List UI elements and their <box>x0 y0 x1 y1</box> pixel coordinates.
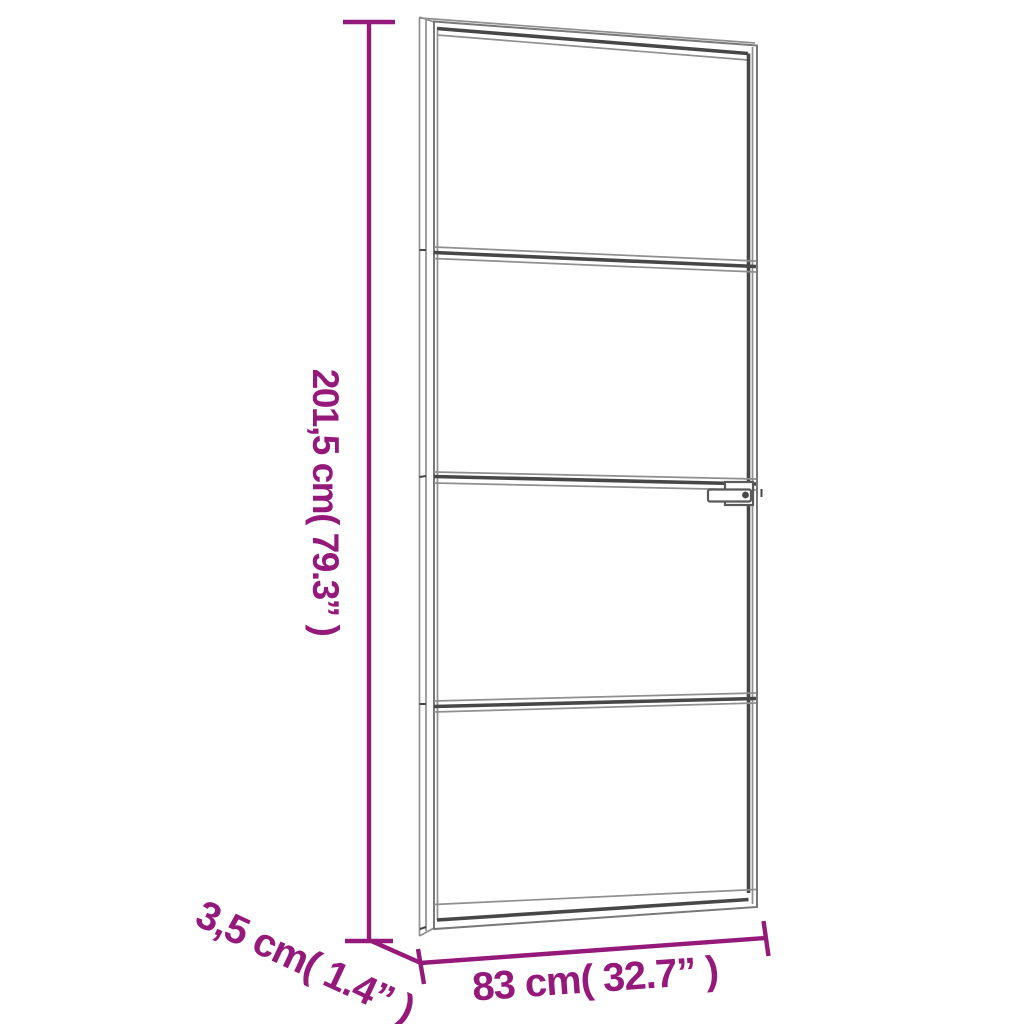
width-dimension: 83 cm( 32.7” ) <box>418 921 769 1010</box>
door-dimension-diagram: 201,5 cm( 79.3” ) 3,5 cm( 1.4” ) 83 cm( … <box>0 0 1024 1024</box>
handle-screw <box>742 492 749 499</box>
door-drawing <box>420 17 762 936</box>
door-left-edge <box>420 17 435 936</box>
height-dimension: 201,5 cm( 79.3” ) <box>305 22 395 941</box>
product-image: 201,5 cm( 79.3” ) 3,5 cm( 1.4” ) 83 cm( … <box>0 0 1024 1024</box>
depth-dimension: 3,5 cm( 1.4” ) <box>189 892 422 1024</box>
depth-dimension-label: 3,5 cm( 1.4” ) <box>189 892 421 1024</box>
height-dimension-label: 201,5 cm( 79.3” ) <box>305 369 346 636</box>
